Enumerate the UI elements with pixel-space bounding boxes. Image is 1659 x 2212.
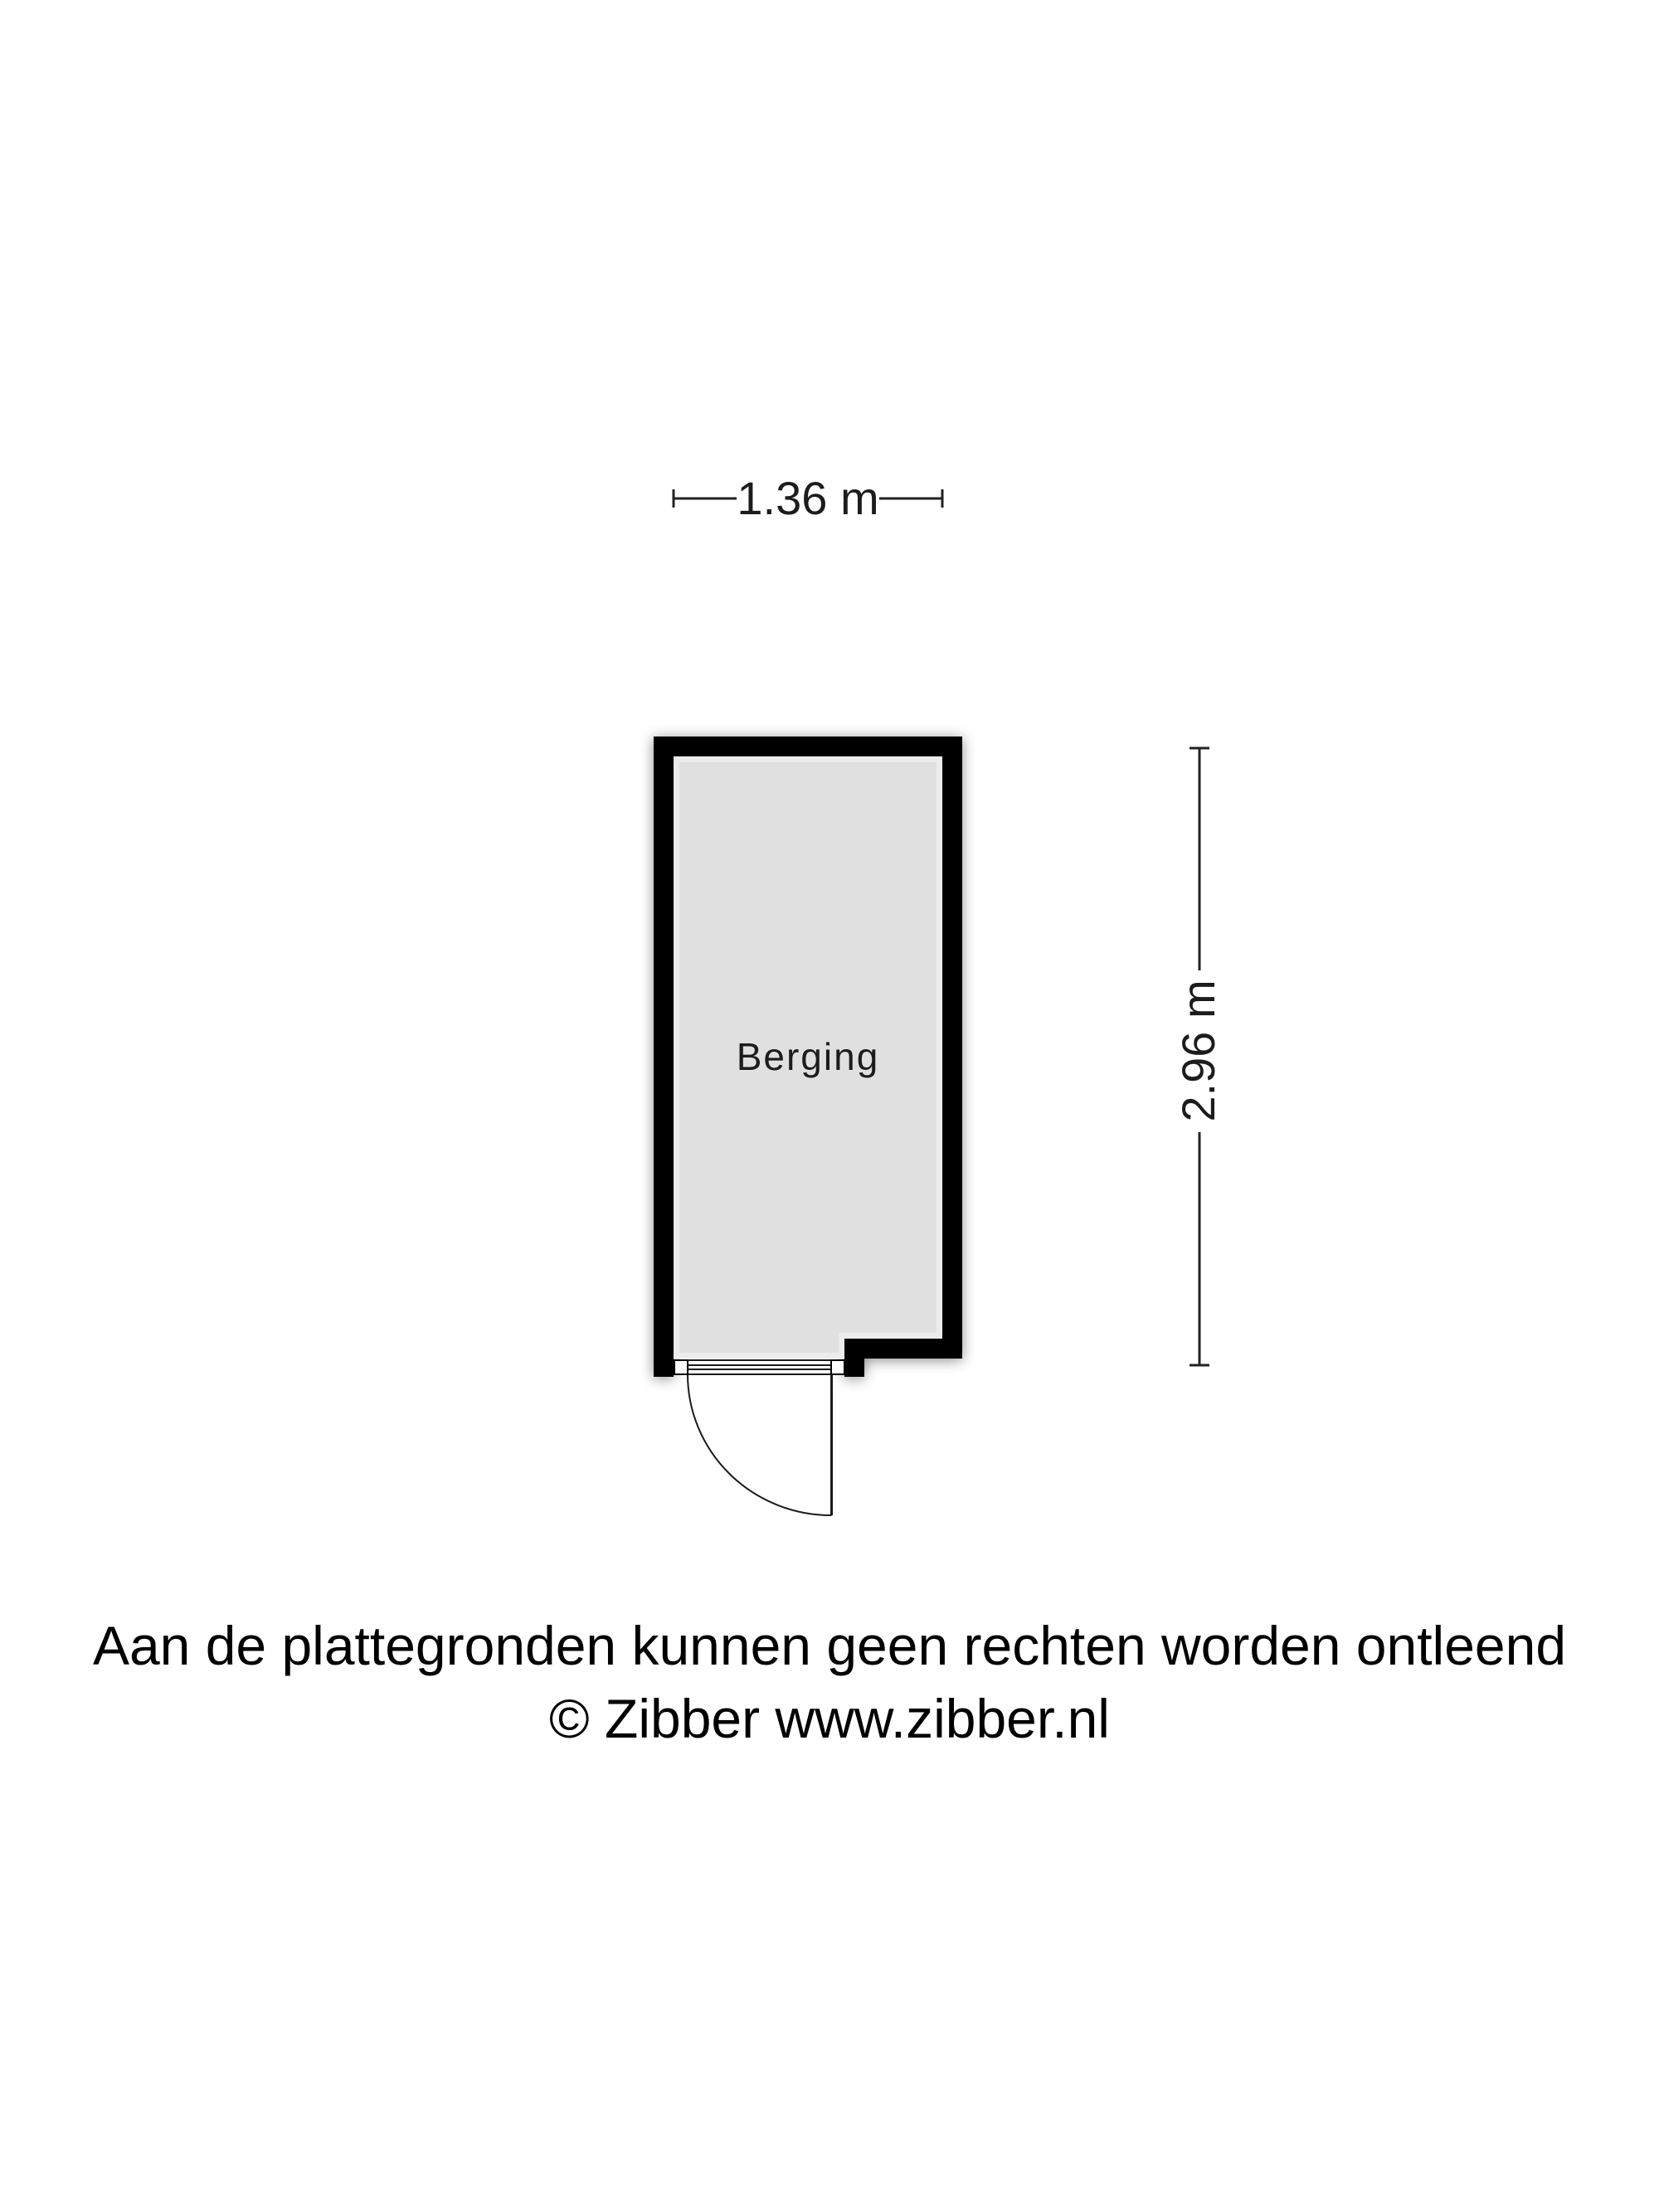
door-jamb-left bbox=[674, 1360, 688, 1374]
copyright-text: © Zibber www.zibber.nl bbox=[0, 1682, 1659, 1755]
threshold-line bbox=[688, 1369, 831, 1370]
threshold-line bbox=[688, 1359, 831, 1361]
wall-step-horizontal bbox=[844, 1339, 962, 1359]
wall-top bbox=[654, 737, 962, 756]
door-threshold bbox=[674, 1359, 844, 1375]
threshold-background bbox=[688, 1359, 831, 1375]
footer: Aan de plattegronden kunnen geen rechten… bbox=[0, 1609, 1659, 1755]
door-swing-arc bbox=[688, 1375, 832, 1515]
door-jamb-right bbox=[831, 1360, 844, 1374]
threshold-line bbox=[688, 1373, 831, 1375]
disclaimer-text: Aan de plattegronden kunnen geen rechten… bbox=[0, 1609, 1659, 1682]
threshold-line bbox=[688, 1364, 831, 1366]
floorplan-drawing: 1.36 m 2.96 m Berging bbox=[0, 0, 1659, 2212]
wall-right bbox=[942, 737, 962, 1359]
dimension-width: 1.36 m bbox=[674, 472, 942, 524]
floorplan-page: 1.36 m 2.96 m Berging Aan de plattegrond… bbox=[0, 0, 1659, 2212]
wall-left bbox=[654, 737, 674, 1377]
dimension-height: 2.96 m bbox=[1172, 748, 1224, 1365]
dimension-height-label: 2.96 m bbox=[1172, 980, 1224, 1121]
wall-step-vertical bbox=[844, 1359, 864, 1377]
dimension-width-label: 1.36 m bbox=[737, 472, 878, 524]
room-label: Berging bbox=[737, 1035, 880, 1078]
